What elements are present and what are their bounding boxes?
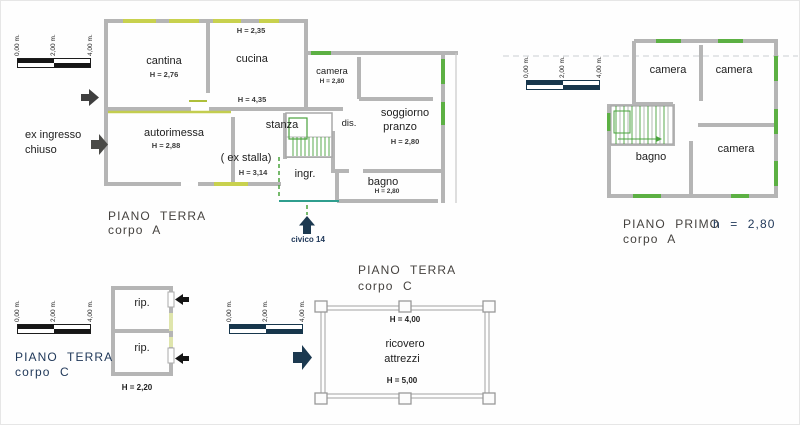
scale-bar-graphic bbox=[229, 324, 303, 334]
scale-tick-label: 4,00 m. bbox=[596, 56, 603, 78]
scale-tick-label: 2,00 m. bbox=[262, 300, 269, 322]
plan-subtitle-terra-a: corpo A bbox=[108, 224, 161, 237]
terra-c1-door-leaf-top bbox=[168, 292, 174, 307]
room-label-ricovero: ricovero bbox=[385, 339, 424, 351]
scale-bar-graphic bbox=[17, 324, 91, 334]
plan-title-primo-a: PIANO PRIMO bbox=[623, 218, 720, 231]
scale-bar-terra-c1: 0,00 m. 2,00 m. 4,00 m. bbox=[17, 294, 93, 338]
scale-bar-terra-c2: 0,00 m. 2,00 m. 4,00 m. bbox=[229, 294, 305, 338]
plan-subtitle-primo-a: corpo A bbox=[623, 233, 676, 246]
rip-top-arrow-left-icon bbox=[175, 294, 189, 305]
scale-tick-label: 4,00 m. bbox=[299, 300, 306, 322]
height-label-terra-c1: H = 2,20 bbox=[122, 384, 152, 392]
height-label-bottom-terra-c2: H = 5,00 bbox=[387, 377, 417, 385]
terra-c1-door-leaf-bottom bbox=[168, 348, 174, 363]
room-label-camera-2: camera bbox=[716, 65, 753, 77]
scale-tick-label: 0,00 m. bbox=[14, 300, 21, 322]
plan-title-terra-c2: PIANO TERRA bbox=[358, 264, 456, 277]
annotation-ex-ingresso: ex ingresso bbox=[25, 130, 81, 142]
room-label-bagno: bagno bbox=[368, 177, 399, 189]
height-label-bagno: H = 2,80 bbox=[375, 189, 400, 196]
height-label-cantina: H = 2,76 bbox=[150, 71, 179, 79]
height-label-top-terra-c2: H = 4,00 bbox=[390, 316, 420, 324]
annotation-chiuso: chiuso bbox=[25, 145, 57, 157]
plan-subtitle-terra-c1: corpo C bbox=[15, 366, 70, 379]
room-label-cucina: cucina bbox=[236, 54, 268, 66]
plan-subtitle-terra-c2: corpo C bbox=[358, 280, 413, 293]
room-label-soggiorno: soggiorno bbox=[381, 108, 429, 120]
terra-c2-arrow-right-icon bbox=[293, 345, 312, 370]
scale-arrow-right-icon bbox=[81, 89, 99, 106]
terra-c1-plan bbox=[113, 286, 189, 376]
scale-tick-label: 2,00 m. bbox=[559, 56, 566, 78]
room-label-rip-1: rip. bbox=[134, 298, 149, 310]
height-label-soggiorno: H = 2,80 bbox=[391, 138, 420, 146]
scale-bar-graphic bbox=[17, 58, 91, 68]
scale-tick-label: 0,00 m. bbox=[14, 34, 21, 56]
room-label-ingr: ingr. bbox=[295, 169, 316, 181]
room-label-bagno-primo: bagno bbox=[636, 152, 667, 164]
room-label-camera-3: camera bbox=[718, 144, 755, 156]
height-label-camera: H = 2,80 bbox=[320, 79, 345, 86]
annotation-civico: civico 14 bbox=[291, 236, 325, 244]
room-label-cantina: cantina bbox=[146, 56, 181, 68]
height-label-primo-a: h = 2,80 bbox=[713, 218, 776, 231]
scale-tick-label: 0,00 m. bbox=[226, 300, 233, 322]
scale-tick-label: 4,00 m. bbox=[87, 34, 94, 56]
room-label-camera: camera bbox=[316, 67, 348, 77]
plan-title-terra-c1: PIANO TERRA bbox=[15, 351, 113, 364]
room-label-autorimessa: autorimessa bbox=[144, 128, 204, 140]
scale-bar-terra-a: 0,00 m. 2,00 m. 4,00 m. bbox=[17, 28, 93, 72]
height-label-stanza: H = 3,14 bbox=[239, 169, 268, 177]
room-label-pranzo: pranzo bbox=[383, 122, 417, 134]
rip-bottom-arrow-left-icon bbox=[175, 353, 189, 364]
room-label-attrezzi: attrezzi bbox=[384, 354, 419, 366]
height-label-mid: H = 4,35 bbox=[238, 96, 267, 104]
terra-a-dashed-boundary bbox=[279, 157, 307, 215]
floor-plan-document: 0,00 m. 2,00 m. 4,00 m. 0,00 m. 2,00 m. … bbox=[0, 0, 800, 425]
room-label-stanza: stanza bbox=[266, 120, 298, 132]
room-label-camera-1: camera bbox=[650, 65, 687, 77]
room-label-dis: dis. bbox=[342, 119, 357, 129]
height-label-cucina: H = 2,35 bbox=[237, 27, 266, 35]
scale-tick-label: 0,00 m. bbox=[523, 56, 530, 78]
scale-tick-label: 2,00 m. bbox=[50, 300, 57, 322]
scale-tick-label: 2,00 m. bbox=[50, 34, 57, 56]
plan-title-terra-a: PIANO TERRA bbox=[108, 210, 206, 223]
room-note-ex-stalla: ( ex stalla) bbox=[221, 153, 272, 165]
scale-bar-graphic bbox=[526, 80, 600, 90]
civico-arrow-up-icon bbox=[299, 216, 315, 234]
room-label-rip-2: rip. bbox=[134, 343, 149, 355]
scale-bar-primo-a: 0,00 m. 2,00 m. 4,00 m. bbox=[526, 50, 602, 94]
scale-tick-label: 4,00 m. bbox=[87, 300, 94, 322]
terra-a-door-gaps bbox=[181, 109, 209, 184]
primo-a-stairs-icon bbox=[611, 106, 673, 144]
height-label-autorimessa: H = 2,88 bbox=[152, 142, 181, 150]
